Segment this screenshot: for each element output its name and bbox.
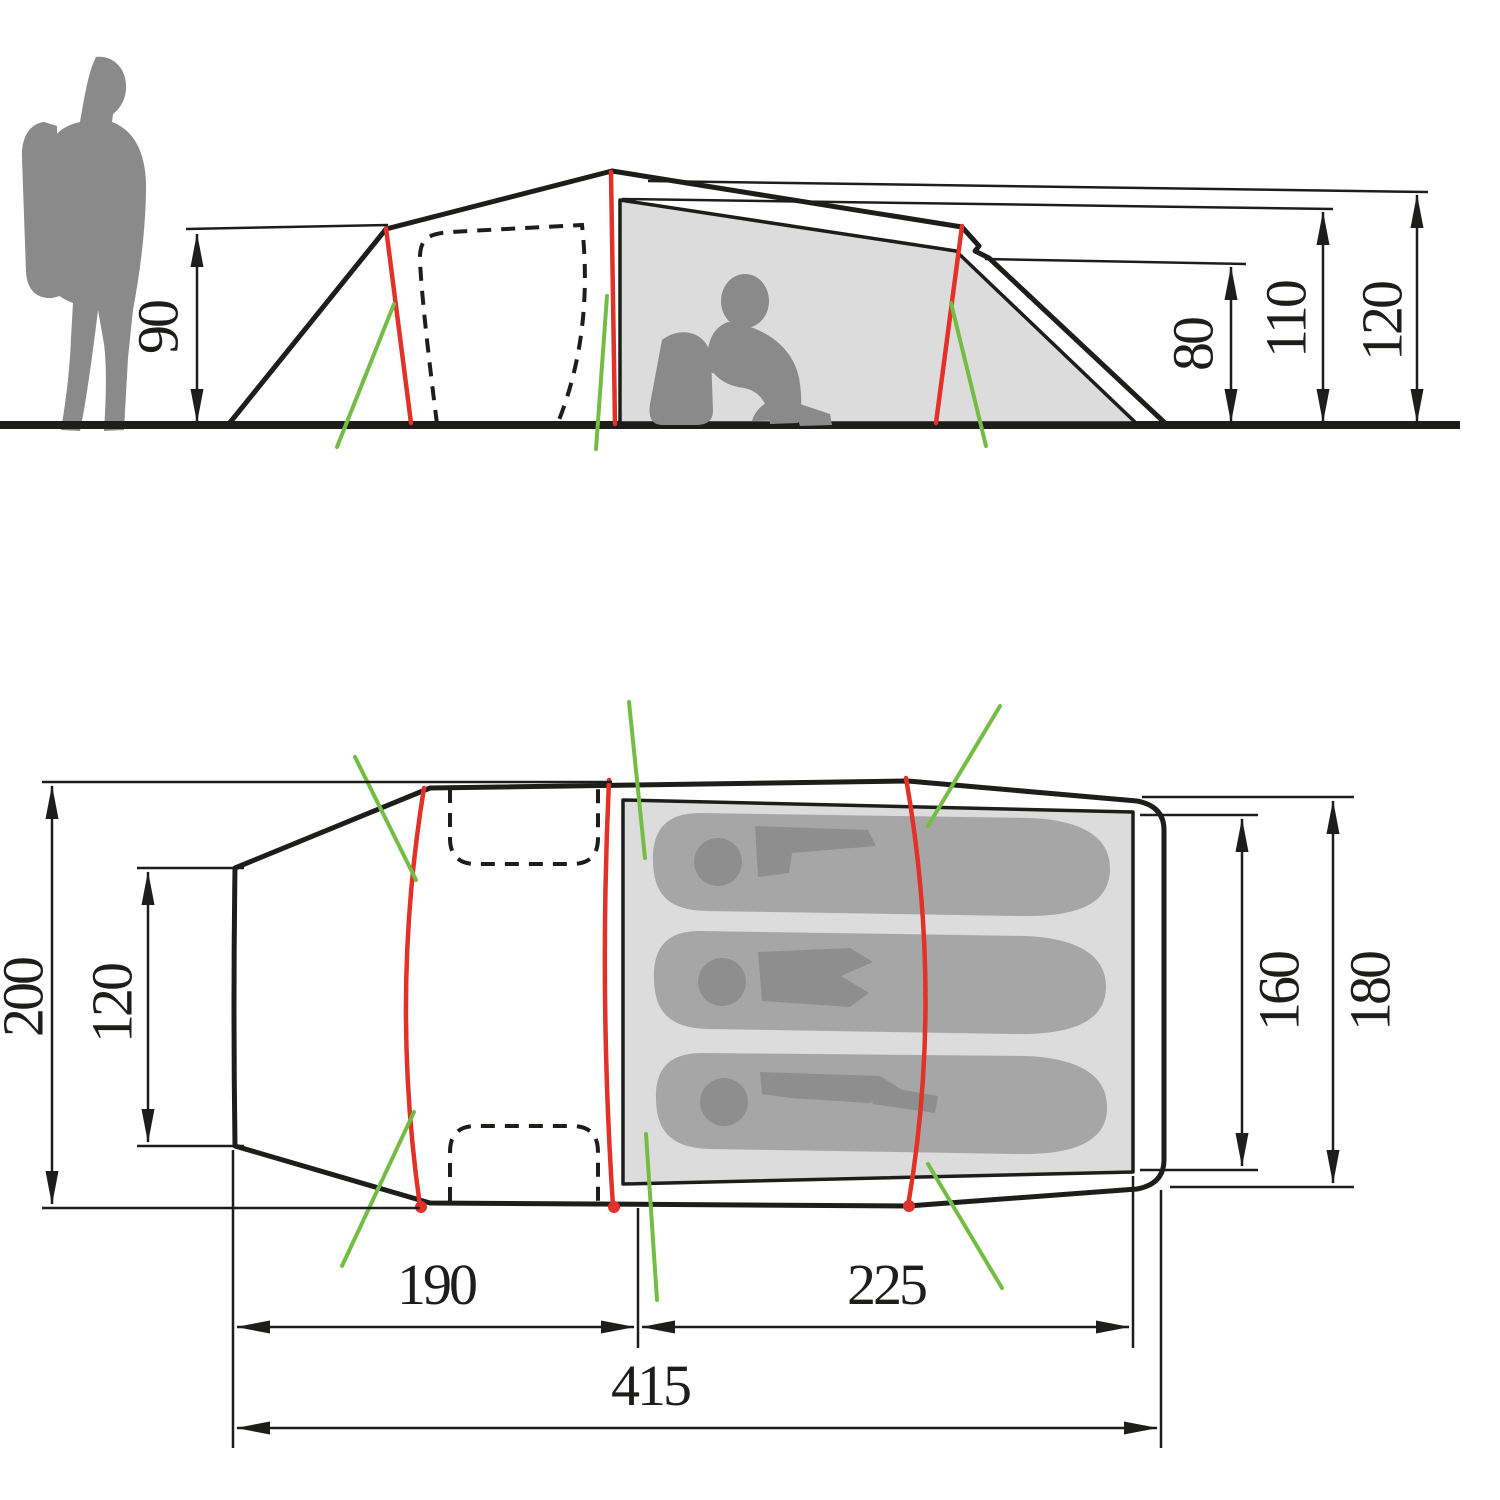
side-view: 90 80 110 120 xyxy=(0,57,1460,449)
door-dashed-outline xyxy=(420,225,585,424)
person-body xyxy=(44,57,146,431)
extension-line xyxy=(985,259,1246,264)
sleeping-person-figure-3 xyxy=(656,1053,1107,1154)
dimension-tail-width: 120 xyxy=(79,868,244,1146)
rear-pole-end-dot xyxy=(903,1200,915,1212)
dimension-label-120-width: 120 xyxy=(79,964,144,1043)
extension-line xyxy=(186,225,388,229)
person-backpack xyxy=(22,122,60,298)
extension-line xyxy=(622,199,1333,209)
dimension-label-190: 190 xyxy=(397,1252,476,1317)
extension-line xyxy=(648,181,1428,192)
center-pole-line xyxy=(611,172,615,424)
top-view: 200 120 160 180 xyxy=(0,702,1402,1448)
front-pole-arc xyxy=(406,788,424,1206)
front-top-guy-line xyxy=(355,757,416,880)
dimension-label-110: 110 xyxy=(1253,281,1318,358)
tent-dimension-diagram: 90 80 110 120 xyxy=(0,0,1500,1500)
standing-person-figure xyxy=(22,57,146,431)
dimension-label-200: 200 xyxy=(0,958,55,1037)
front-door-dashed-outline xyxy=(450,789,598,864)
dimension-label-180: 180 xyxy=(1337,952,1402,1031)
dimension-label-120: 120 xyxy=(1349,282,1414,361)
dimension-label-160: 160 xyxy=(1246,952,1311,1031)
person-head xyxy=(700,1078,748,1126)
sleeping-person-figure-2 xyxy=(654,931,1106,1034)
rear-door-dashed-outline xyxy=(450,1126,598,1201)
sleeping-person-figure-1 xyxy=(653,813,1110,916)
person-head xyxy=(721,274,769,328)
center-pole-arc xyxy=(605,780,613,1206)
person-head xyxy=(694,838,742,886)
dimension-label-225: 225 xyxy=(847,1252,926,1317)
person-head xyxy=(698,958,746,1006)
dimension-vestibule-length: 190 xyxy=(237,1252,634,1327)
front-bottom-guy-line xyxy=(342,1112,414,1266)
front-pole-line xyxy=(386,228,411,423)
rear-bottom-guy-line xyxy=(928,1164,1002,1288)
diagram-canvas: 90 80 110 120 xyxy=(0,0,1500,1500)
center-pole-end-dot xyxy=(608,1201,620,1213)
dimension-total-length: 415 xyxy=(237,1353,1157,1428)
dimension-label-90: 90 xyxy=(125,301,190,354)
dimension-label-415: 415 xyxy=(611,1353,690,1418)
dimension-label-80: 80 xyxy=(1160,318,1225,371)
dimension-inner-length: 225 xyxy=(642,1252,1129,1327)
